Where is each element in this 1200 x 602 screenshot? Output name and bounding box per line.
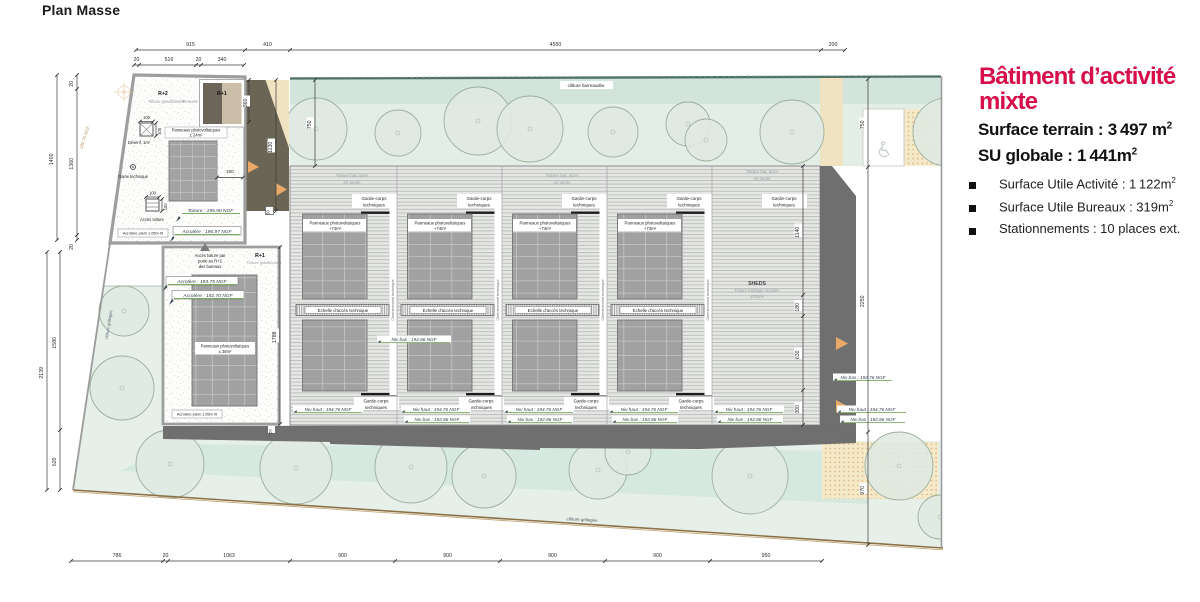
svg-text:1020m²: 1020m² <box>750 294 765 299</box>
svg-text:techniques: techniques <box>773 203 796 208</box>
svg-text:Désenf. 1m²: Désenf. 1m² <box>128 140 151 145</box>
svg-text:Niv bas : 192.86 NGF: Niv bas : 192.86 NGF <box>850 417 896 422</box>
svg-text:900: 900 <box>653 553 662 559</box>
svg-text:Garde-corps: Garde-corps <box>573 399 599 404</box>
svg-text:Terrasse: Terrasse <box>182 99 199 104</box>
svg-text:Panneaux photovoltaïques: Panneaux photovoltaïques <box>625 221 676 226</box>
svg-text:Toiture bac acier: Toiture bac acier <box>746 169 779 174</box>
svg-text:techniques: techniques <box>468 203 491 208</box>
svg-text:1788: 1788 <box>272 331 278 343</box>
svg-text:200: 200 <box>226 169 234 174</box>
svg-text:Echelle d'accès technique: Echelle d'accès technique <box>423 308 474 313</box>
svg-text:techniques: techniques <box>573 203 596 208</box>
svg-text:900: 900 <box>338 553 347 559</box>
svg-text:+74m²: +74m² <box>644 226 657 231</box>
svg-text:100: 100 <box>163 203 168 211</box>
svg-text:360: 360 <box>243 98 249 107</box>
svg-text:20: 20 <box>163 553 169 559</box>
svg-text:Niv bas : 192.86 NGF: Niv bas : 192.86 NGF <box>727 417 773 422</box>
svg-text:50: 50 <box>266 210 271 215</box>
svg-text:786: 786 <box>113 553 122 559</box>
svg-text:Niv haut : 194.76 NGF: Niv haut : 194.76 NGF <box>516 407 564 412</box>
svg-text:340: 340 <box>218 57 227 63</box>
svg-text:SHEDS: SHEDS <box>748 281 766 287</box>
svg-text:Niv haut : 194.76 NGF: Niv haut : 194.76 NGF <box>726 407 774 412</box>
svg-text:750: 750 <box>307 120 313 129</box>
svg-text:Acrotère : 192.70 NGF: Acrotère : 192.70 NGF <box>182 293 233 299</box>
svg-text:20: 20 <box>134 57 140 63</box>
svg-text:Acrotère plein 1.05m ht: Acrotère plein 1.05m ht <box>177 412 218 417</box>
svg-text:Panneaux photovoltaïques: Panneaux photovoltaïques <box>201 344 249 349</box>
svg-text:techniques: techniques <box>680 405 703 410</box>
svg-text:Acrotère : 193.75 NGF: Acrotère : 193.75 NGF <box>176 279 227 285</box>
svg-text:1140: 1140 <box>795 227 801 238</box>
svg-text:900: 900 <box>443 553 452 559</box>
svg-text:porte au R+2: porte au R+2 <box>198 259 223 264</box>
svg-text:R+1: R+1 <box>255 253 265 259</box>
svg-text:Niv haut : 194.76 NGF: Niv haut : 194.76 NGF <box>849 407 897 412</box>
svg-text:Niv bas : 192.86 NGF: Niv bas : 192.86 NGF <box>391 337 437 342</box>
svg-text:Niv bas : 192.86 NGF: Niv bas : 192.86 NGF <box>414 417 460 422</box>
svg-text:Niv haut : 194.76 NGF: Niv haut : 194.76 NGF <box>413 407 461 412</box>
svg-text:des bureaux: des bureaux <box>199 264 222 269</box>
svg-text:180: 180 <box>795 303 801 312</box>
svg-text:techniques: techniques <box>575 405 598 410</box>
svg-text:techniques: techniques <box>363 203 386 208</box>
svg-text:en pente: en pente <box>553 180 571 185</box>
svg-text:Niv bas : 192.86 NGF: Niv bas : 192.86 NGF <box>622 417 668 422</box>
svg-text:Panneaux photovoltaïques: Panneaux photovoltaïques <box>415 221 466 226</box>
svg-text:Panneaux photovoltaïques: Panneaux photovoltaïques <box>310 221 361 226</box>
svg-text:en pente: en pente <box>343 180 361 185</box>
svg-text:Cheminement technique: Cheminement technique <box>706 279 710 320</box>
svg-text:Acrotère plein 1.05m ht: Acrotère plein 1.05m ht <box>123 231 164 236</box>
svg-text:Echelle d'accès technique: Echelle d'accès technique <box>318 308 369 313</box>
svg-text:750: 750 <box>860 120 866 129</box>
svg-text:1400: 1400 <box>49 153 55 165</box>
svg-text:Niv bas : 192.86 NGF: Niv bas : 192.86 NGF <box>517 417 563 422</box>
svg-text:900: 900 <box>548 553 557 559</box>
svg-text:2139: 2139 <box>39 367 45 379</box>
svg-text:Garde-corps: Garde-corps <box>466 196 492 201</box>
svg-text:Echelle d'accès technique: Echelle d'accès technique <box>633 308 684 313</box>
svg-text:4550: 4550 <box>550 42 562 48</box>
svg-text:Cheminement technique: Cheminement technique <box>496 279 500 320</box>
svg-text:Accès toiture: Accès toiture <box>140 217 164 222</box>
svg-text:Toiture : 195.90 NGF: Toiture : 195.90 NGF <box>188 208 235 214</box>
svg-text:516: 516 <box>165 57 174 63</box>
svg-text:Toiture bardage ondulée: Toiture bardage ondulée <box>734 288 780 293</box>
svg-text:techniques: techniques <box>470 405 493 410</box>
svg-text:Panneaux photovoltaïques: Panneaux photovoltaïques <box>520 221 571 226</box>
svg-text:2250: 2250 <box>860 295 866 307</box>
svg-text:185.76 NGF: 185.76 NGF <box>78 125 90 150</box>
svg-text:± 24m²: ± 24m² <box>190 133 203 138</box>
svg-text:Accès toiture par: Accès toiture par <box>195 253 226 258</box>
svg-text:630: 630 <box>795 350 801 359</box>
svg-text:Garde-corps: Garde-corps <box>771 196 797 201</box>
svg-text:Toiture gravillonnée: Toiture gravillonnée <box>247 260 282 265</box>
svg-text:techniques: techniques <box>365 405 388 410</box>
svg-text:Toiture gravillonnée: Toiture gravillonnée <box>148 99 185 104</box>
svg-text:Acrotère : 196.97 NGF: Acrotère : 196.97 NGF <box>181 229 232 235</box>
svg-text:Garde-corps: Garde-corps <box>678 399 704 404</box>
svg-text:100: 100 <box>143 115 151 120</box>
svg-text:+74m²: +74m² <box>434 226 447 231</box>
svg-text:20: 20 <box>196 57 202 63</box>
svg-text:Garde-corps: Garde-corps <box>363 399 389 404</box>
svg-text:100: 100 <box>157 127 162 135</box>
svg-text:Niv haut : 194.76 NGF: Niv haut : 194.76 NGF <box>305 407 353 412</box>
svg-text:Cheminement technique: Cheminement technique <box>391 279 395 320</box>
svg-text:clôture barreaudée: clôture barreaudée <box>568 83 605 88</box>
svg-text:50: 50 <box>268 429 273 434</box>
svg-text:1360: 1360 <box>69 158 75 170</box>
svg-text:20: 20 <box>69 244 75 250</box>
svg-text:Garde-corps: Garde-corps <box>361 196 387 201</box>
svg-text:Toiture bac acier: Toiture bac acier <box>546 173 579 178</box>
svg-text:R+2: R+2 <box>158 91 168 97</box>
svg-text:Gaine technique: Gaine technique <box>118 174 149 179</box>
svg-text:300: 300 <box>795 405 801 414</box>
svg-text:410: 410 <box>263 42 272 48</box>
svg-text:100: 100 <box>149 191 157 196</box>
svg-text:620: 620 <box>52 457 58 466</box>
svg-text:R+1: R+1 <box>217 91 227 97</box>
svg-text:Niv haut : 194.76 NGF: Niv haut : 194.76 NGF <box>621 407 669 412</box>
svg-text:970: 970 <box>860 486 866 495</box>
svg-text:915: 915 <box>186 42 195 48</box>
svg-text:+74m²: +74m² <box>329 226 342 231</box>
svg-text:+74m²: +74m² <box>539 226 552 231</box>
svg-text:± 38m²: ± 38m² <box>219 349 232 354</box>
svg-text:1580: 1580 <box>52 337 58 349</box>
svg-text:Garde-corps: Garde-corps <box>676 196 702 201</box>
svg-text:950: 950 <box>762 553 771 559</box>
svg-text:20: 20 <box>69 81 75 87</box>
svg-text:Niv bas : 192.76 NGF: Niv bas : 192.76 NGF <box>840 375 886 380</box>
svg-text:en pente: en pente <box>753 176 771 181</box>
svg-text:1130: 1130 <box>268 142 274 153</box>
svg-text:Cheminement technique: Cheminement technique <box>601 279 605 320</box>
svg-text:Toiture bac acier: Toiture bac acier <box>336 173 369 178</box>
svg-text:Echelle d'accès technique: Echelle d'accès technique <box>528 308 579 313</box>
svg-text:Garde-corps: Garde-corps <box>571 196 597 201</box>
svg-text:Garde-corps: Garde-corps <box>468 399 494 404</box>
svg-text:techniques: techniques <box>678 203 701 208</box>
svg-text:1063: 1063 <box>223 553 235 559</box>
svg-text:200: 200 <box>829 42 838 48</box>
